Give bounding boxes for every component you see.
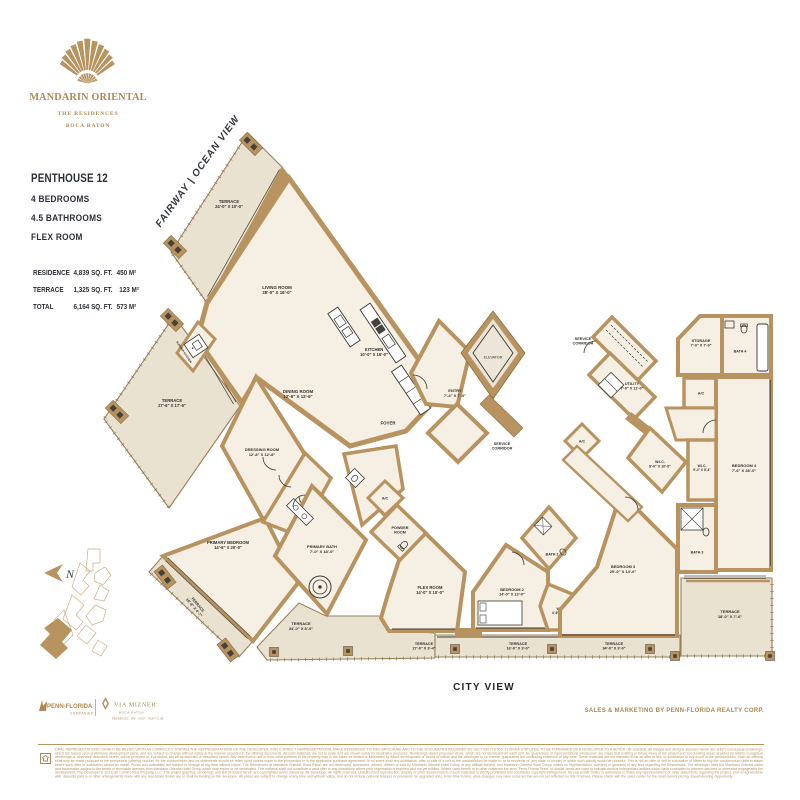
svg-text:VIA MIZNER: VIA MIZNER bbox=[114, 702, 156, 709]
svg-text:PENN-FLORIDA: PENN-FLORIDA bbox=[47, 704, 93, 710]
svg-text:COMPANIES: COMPANIES bbox=[70, 712, 93, 716]
svg-text:BOCA RATON: BOCA RATON bbox=[119, 711, 144, 715]
svg-text:RESIDENCES · SPA · GOLF · YACH: RESIDENCES · SPA · GOLF · YACHT CLUB bbox=[112, 718, 164, 721]
